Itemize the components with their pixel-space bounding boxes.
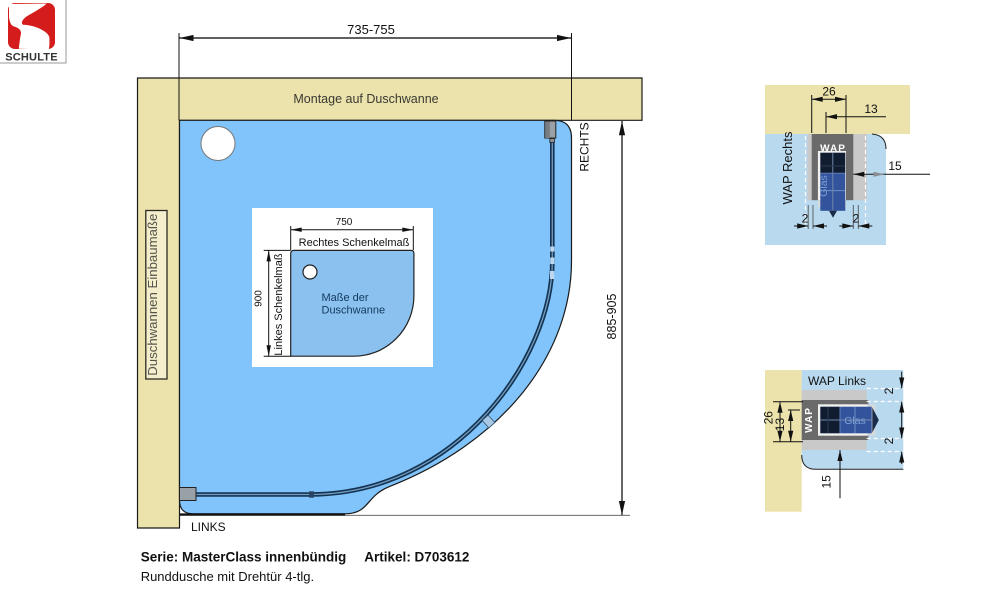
svg-text:Linkes Schenkelmaß: Linkes Schenkelmaß [273, 253, 285, 355]
svg-text:885-905: 885-905 [605, 294, 619, 340]
svg-text:RECHTS: RECHTS [578, 122, 592, 171]
svg-text:Serie: MasterClass innenbündig: Serie: MasterClass innenbündig [141, 550, 347, 565]
svg-text:Duschwanne: Duschwanne [322, 304, 386, 316]
svg-text:LINKS: LINKS [191, 520, 226, 534]
svg-text:900: 900 [254, 290, 265, 307]
svg-text:750: 750 [336, 217, 353, 228]
svg-text:2: 2 [882, 387, 896, 394]
svg-text:2: 2 [853, 212, 860, 226]
svg-text:15: 15 [888, 159, 902, 173]
svg-text:WAP Links: WAP Links [808, 374, 866, 388]
svg-text:Montage auf Duschwanne: Montage auf Duschwanne [293, 92, 438, 106]
svg-text:Maße der: Maße der [322, 292, 369, 304]
svg-text:WAP Rechts: WAP Rechts [780, 131, 795, 204]
svg-text:Rechtes Schenkelmaß: Rechtes Schenkelmaß [299, 237, 410, 249]
svg-text:SCHULTE: SCHULTE [5, 52, 58, 64]
svg-text:13: 13 [773, 418, 787, 432]
svg-text:15: 15 [819, 475, 833, 489]
svg-text:Glas: Glas [844, 415, 866, 427]
svg-text:735-755: 735-755 [347, 22, 395, 37]
svg-text:WAP: WAP [804, 407, 815, 433]
svg-text:2: 2 [802, 212, 809, 226]
svg-text:Duschwannen Einbaumaße: Duschwannen Einbaumaße [145, 214, 160, 376]
svg-text:Runddusche mit Drehtür 4-tlg.: Runddusche mit Drehtür 4-tlg. [141, 569, 314, 584]
svg-text:Artikel: D703612: Artikel: D703612 [364, 550, 469, 565]
svg-text:2: 2 [882, 437, 896, 444]
svg-text:26: 26 [822, 85, 836, 99]
svg-text:Glas: Glas [818, 175, 830, 197]
svg-text:13: 13 [864, 102, 878, 116]
